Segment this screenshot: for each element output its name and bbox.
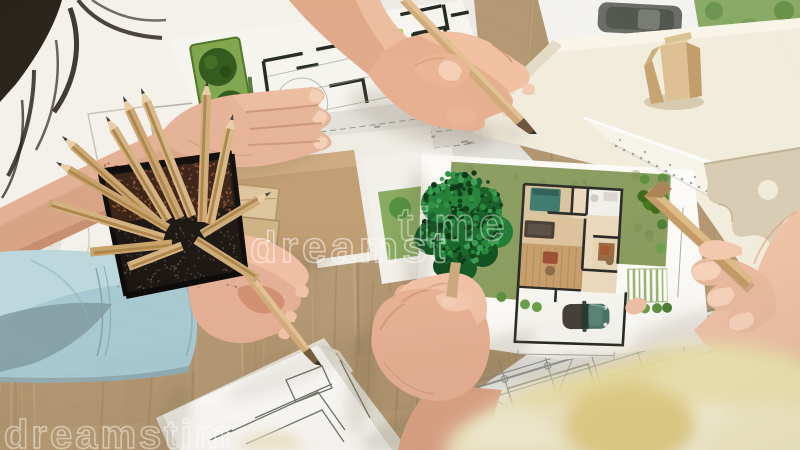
svg-text:time: time <box>398 198 509 250</box>
svg-text:dreamstim: dreamstim <box>4 413 233 450</box>
